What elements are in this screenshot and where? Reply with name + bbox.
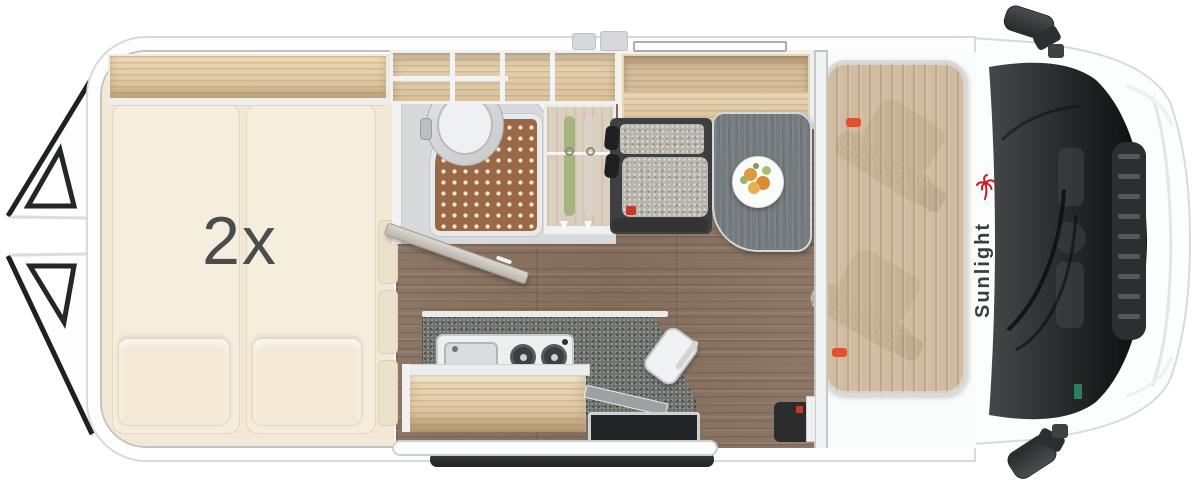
leaf — [753, 163, 759, 169]
wardrobe-sill — [544, 226, 616, 234]
seatbelt-buckle-red — [626, 206, 636, 215]
burner-cap — [520, 354, 527, 361]
dinette-shelf-back — [624, 56, 808, 92]
hanger-icon — [565, 147, 574, 156]
brand-logo-text: Sunlight — [972, 200, 998, 318]
inspection-sticker — [1074, 384, 1082, 399]
garment-green — [564, 116, 575, 216]
cab-bed-panel — [822, 60, 968, 396]
kitchen-front-shelf — [406, 376, 586, 432]
bench-backrest-cushion — [620, 124, 704, 154]
grape — [762, 166, 771, 175]
garment-white — [584, 116, 595, 216]
seatbelt-point-red — [846, 118, 861, 127]
roof-vent-bar — [633, 41, 787, 52]
seat-base-marker — [796, 406, 803, 413]
bed-side-cushion — [378, 360, 398, 426]
counter-back-edge — [422, 311, 668, 317]
bed-shelf-rim — [108, 99, 388, 106]
burner-cap — [551, 354, 558, 361]
floorplan-canvas: 2x — [0, 0, 1200, 482]
mirror-base-bottom — [1052, 424, 1068, 438]
bench-frame-lip — [612, 218, 708, 232]
toilet-hinge — [420, 118, 432, 140]
grape — [740, 176, 748, 184]
bed-overhead-shelf — [108, 54, 388, 100]
rear-doors-open-icon — [0, 40, 100, 440]
wardrobe-rail — [547, 152, 613, 155]
mirror-base-top — [1048, 44, 1064, 58]
ignition-dot — [562, 339, 568, 345]
shelf-end-cap — [402, 364, 410, 432]
seatbelt-point-red — [832, 348, 847, 357]
roof-accessory — [600, 31, 628, 51]
kitchen-front-shelf-top — [402, 364, 590, 376]
grille — [1112, 142, 1146, 340]
cabinet-divider — [550, 50, 555, 104]
sink-faucet-dot — [452, 346, 458, 352]
fruit — [748, 182, 760, 194]
toilet-lid — [437, 95, 493, 155]
headrest — [604, 153, 620, 178]
door-pillar — [806, 396, 816, 442]
headrest — [604, 125, 620, 150]
cabinet-shelf-line — [393, 76, 508, 81]
entry-step-board-white — [392, 440, 718, 456]
pillow-right — [252, 338, 362, 426]
roof-accessory — [572, 33, 596, 50]
hanger-icon — [586, 147, 595, 156]
bed-count-label: 2x — [165, 196, 315, 286]
cab-partition-wall — [814, 52, 828, 448]
bed-side-cushion — [378, 290, 398, 354]
palm-tree-icon — [976, 174, 996, 200]
pillow-left — [118, 338, 230, 426]
